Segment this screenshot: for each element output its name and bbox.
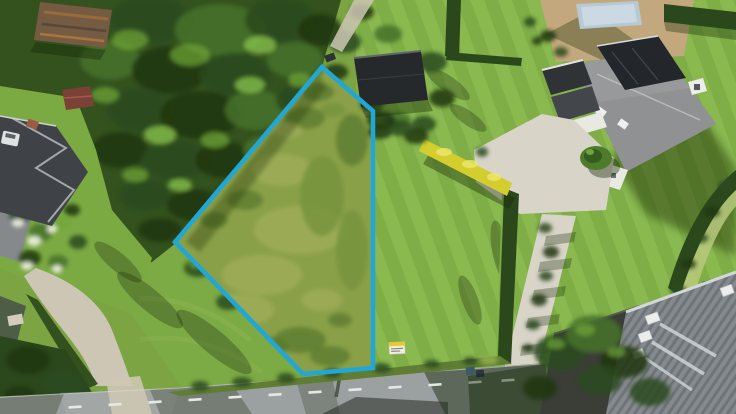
canopy_blobs-blob — [523, 376, 557, 400]
forest_blobs-blob — [91, 87, 119, 103]
verge_blobs-blob — [277, 373, 295, 383]
lane_bushes-blob — [476, 147, 488, 157]
verge_blobs-blob — [373, 363, 391, 373]
garden_blobs-blob — [12, 219, 24, 227]
forest_blobs-blob — [244, 36, 276, 54]
forest_blobs-blob — [122, 168, 148, 182]
garden_blobs-blob — [21, 262, 33, 270]
canopy_blobs-blob — [547, 339, 565, 349]
verge_blobs-blob — [424, 360, 440, 368]
garden_blobs-blob — [47, 225, 57, 233]
garden_blobs-blob — [52, 265, 62, 273]
forest_blobs-blob — [201, 132, 229, 148]
lane_bushes-blob — [538, 223, 552, 233]
plot_blobs-blob — [328, 313, 352, 327]
forest_south-blob — [6, 346, 50, 374]
forest_blobs-blob — [170, 44, 210, 66]
sale-sign — [389, 342, 406, 355]
garden_blobs-blob — [64, 204, 80, 216]
lane_bushes-blob — [526, 320, 540, 330]
plot_blobs-blob — [310, 346, 350, 366]
lane_bushes-blob — [539, 271, 553, 281]
pool_bushes-blob — [524, 17, 536, 27]
verge_blobs-blob — [232, 377, 252, 387]
canopy_blobs-blob — [578, 365, 622, 395]
plot_blobs-blob — [336, 210, 368, 290]
forest_blobs-blob — [374, 25, 402, 43]
forest_blobs-blob — [112, 30, 148, 50]
lane_bushes-blob — [531, 294, 547, 306]
garden_blobs-blob — [69, 235, 87, 249]
aerial-photo-canvas — [0, 0, 736, 414]
yellow-hedge-highlight — [436, 148, 452, 156]
edge_hedge_blobs-blob — [718, 181, 734, 191]
sign-band — [389, 342, 405, 347]
forest_blobs-blob — [235, 77, 265, 93]
canopy_blobs-blob — [630, 378, 670, 406]
verge_blobs-blob — [463, 357, 477, 365]
pool_bushes-blob — [540, 30, 556, 42]
garden_blobs-blob — [27, 236, 41, 246]
edge_hedge_blobs-blob — [692, 233, 708, 243]
east_trees-blob — [429, 89, 455, 107]
pool-garden-hedge-west — [445, 0, 461, 58]
chimney-flue — [694, 84, 700, 90]
yellow-hedge-highlight — [487, 173, 501, 181]
edge_hedge_blobs-blob — [704, 207, 720, 217]
lane_bushes-blob — [522, 344, 534, 352]
aerial-photo — [0, 0, 736, 414]
yellow-hedge-highlight — [462, 160, 478, 168]
pool_bushes-blob — [554, 47, 568, 57]
forest_blobs-blob — [92, 132, 148, 168]
canopy_blobs-blob — [607, 347, 625, 357]
verge_blobs-blob — [480, 355, 498, 365]
plot_blobs-blob — [222, 255, 302, 295]
verge_blobs-blob — [191, 381, 209, 391]
forest_blobs-blob — [144, 126, 176, 144]
plot_blobs-blob — [300, 156, 344, 236]
pool_bushes-blob — [532, 37, 542, 45]
plot_blobs-blob — [336, 114, 368, 166]
lane_bushes-blob — [543, 246, 559, 258]
canopy_blobs-blob — [575, 324, 595, 336]
island-bush-highlight — [586, 149, 594, 155]
plot_blobs-blob — [321, 103, 345, 117]
forest_blobs-blob — [119, 179, 171, 211]
edge_hedge_blobs-blob — [680, 259, 696, 269]
plot_blobs-blob — [302, 289, 342, 311]
forest_blobs-blob — [168, 179, 192, 191]
waste-bin — [466, 366, 476, 375]
